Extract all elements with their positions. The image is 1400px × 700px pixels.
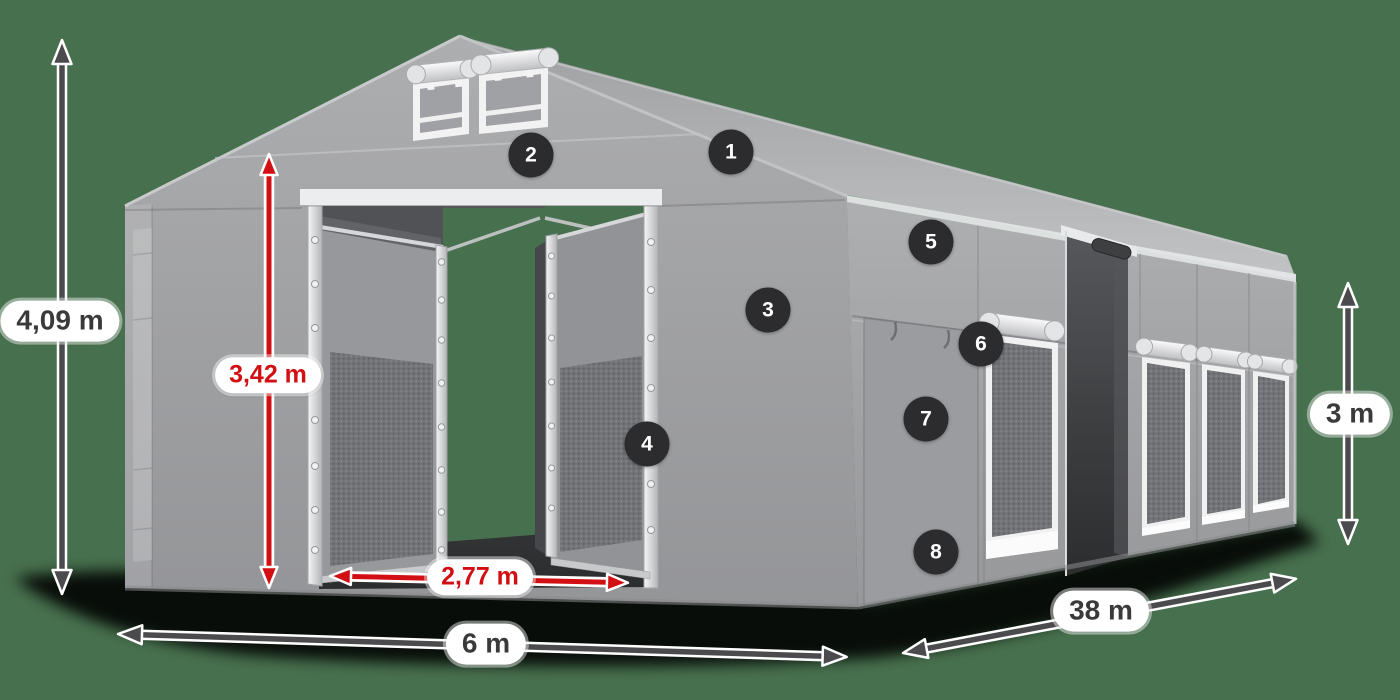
dimension-total-height-label: 4,09 m <box>0 301 119 342</box>
entrance-door-right <box>535 213 650 576</box>
entrance-post-left <box>308 206 322 586</box>
part-marker-7[interactable]: 7 <box>904 397 949 442</box>
tent-illustration <box>0 0 1400 700</box>
dimension-side-length-label: 38 m <box>1053 591 1149 632</box>
entrance-door-left <box>320 216 447 580</box>
entrance-post-right <box>644 206 658 588</box>
diagram-stage: 4,09 m 3,42 m 2,77 m 6 m 38 m 3 m 1 2 3 … <box>0 0 1400 700</box>
dimension-front-width-label: 6 m <box>446 624 526 665</box>
part-marker-1[interactable]: 1 <box>709 130 754 175</box>
part-marker-3[interactable]: 3 <box>746 288 791 333</box>
part-marker-2[interactable]: 2 <box>509 133 554 178</box>
part-marker-6[interactable]: 6 <box>959 322 1004 367</box>
roof-vent-2 <box>470 47 560 134</box>
part-marker-4[interactable]: 4 <box>625 422 670 467</box>
dimension-entrance-width-label: 2,77 m <box>427 559 533 595</box>
part-marker-8[interactable]: 8 <box>914 530 959 575</box>
dimension-side-wall-height-label: 3 m <box>1310 394 1390 435</box>
side-entrance <box>1061 225 1137 576</box>
front-entrance <box>300 189 662 589</box>
side-window-2 <box>1134 337 1199 536</box>
dimension-entrance-height-label: 3,42 m <box>215 357 321 393</box>
part-marker-5[interactable]: 5 <box>909 220 954 265</box>
